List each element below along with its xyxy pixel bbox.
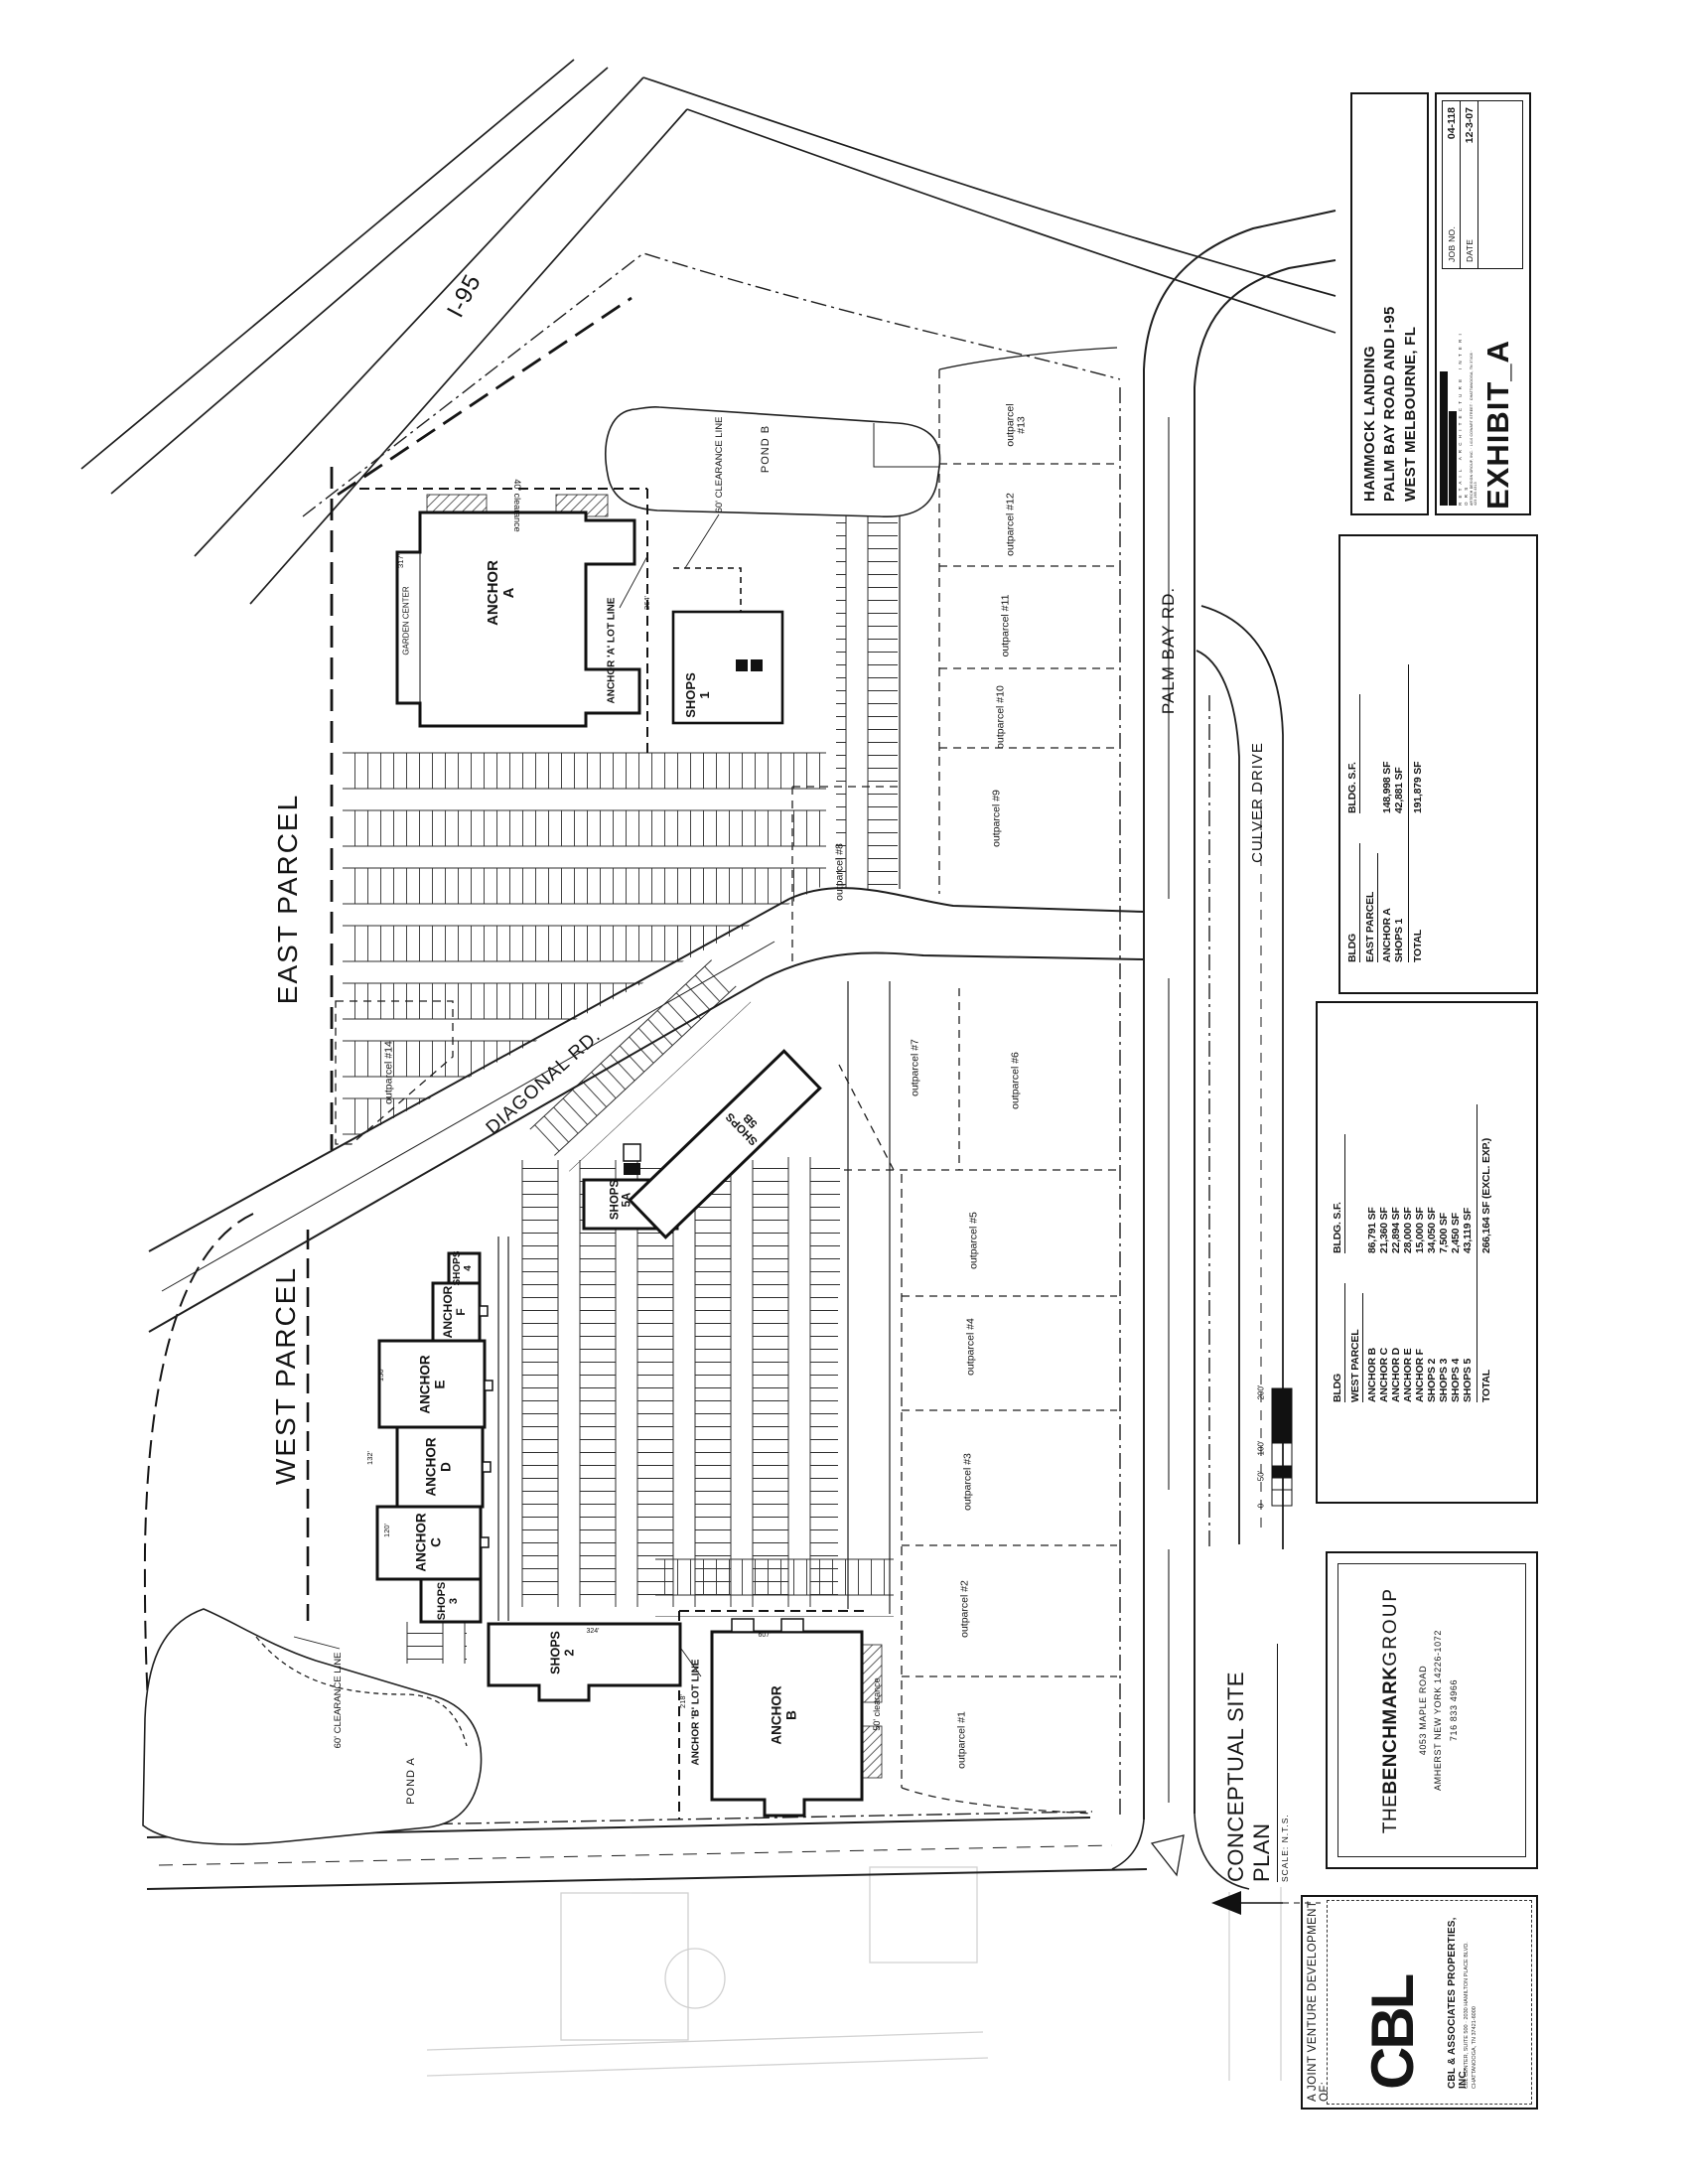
bldg-sf: 43,119 SF (1462, 1124, 1474, 1253)
job-info-box: JOB NO. 04-118 DATE 12-3-07 (1442, 100, 1523, 269)
scalebar-tick: 50' (1258, 1471, 1267, 1481)
plan-title-block: CONCEPTUAL SITE PLAN SCALE: N.T.S. (1223, 1644, 1259, 1882)
bldg-name: ANCHOR B (1366, 1253, 1378, 1402)
label-culver-drive: CULVER DRIVE (1250, 742, 1266, 863)
cbl-logo: CBL (1363, 1976, 1423, 2090)
bldg-name: SHOPS 2 (1426, 1253, 1438, 1402)
label-outparcel-7: outparcel #7 (910, 1039, 920, 1096)
label-anchor-b-lot-line: ANCHOR 'B' LOT LINE (692, 1660, 703, 1766)
bldg-name: ANCHOR A (1381, 813, 1393, 962)
west-table-header: BLDG BLDG. S.F. (1332, 1104, 1345, 1402)
table-row: SHOPS 142,881 SF (1393, 664, 1405, 962)
project-title: HAMMOCK LANDING PALM BAY ROAD AND I-95 W… (1360, 306, 1421, 502)
label-dim-120: 120' (383, 1524, 391, 1537)
architect-logo-bar (1440, 371, 1448, 506)
label-clearance-40: 40' clearance (511, 479, 521, 531)
date-value: 12-3-07 (1464, 107, 1476, 143)
project-name: HAMMOCK LANDING (1360, 306, 1380, 502)
label-shops-1: SHOPS 1 (684, 672, 712, 718)
label-outparcel-12: outparcel #12 (1005, 493, 1016, 556)
west-parcel-table: BLDG BLDG. S.F. WEST PARCEL ANCHOR B86,7… (1332, 1104, 1492, 1402)
label-outparcel-4: outparcel #4 (965, 1318, 976, 1376)
bldg-sf: 28,000 SF (1402, 1124, 1414, 1253)
table-row: ANCHOR A148,998 SF (1381, 664, 1393, 962)
architect-stamp: R E T A I L A R C H I T E C T U R E I N … (1440, 332, 1477, 506)
job-no-value: 04-118 (1446, 107, 1458, 139)
bldg-sf: 15,000 SF (1414, 1124, 1426, 1253)
plan-scale-note: SCALE: N.T.S. (1280, 1644, 1290, 1882)
benchmark-address: 4053 MAPLE ROAD AMHERST NEW YORK 14226-1… (1416, 1564, 1462, 1856)
table-row: ANCHOR B86,791 SF (1366, 1104, 1378, 1402)
date-label: DATE (1465, 239, 1475, 262)
bldg-sf: 148,998 SF (1381, 684, 1393, 813)
bldg-sf: 34,050 SF (1426, 1124, 1438, 1253)
architect-logo-bar2 (1449, 411, 1457, 506)
titleblock-project-box: HAMMOCK LANDING PALM BAY ROAD AND I-95 W… (1350, 92, 1429, 515)
label-east-parcel: EAST PARCEL (273, 794, 303, 1004)
label-garden-center: GARDEN CENTER (403, 586, 412, 655)
label-dim-150: 150' (377, 1368, 385, 1382)
label-dim-132: 132' (366, 1451, 374, 1465)
bldg-sf: 2,450 SF (1450, 1124, 1462, 1253)
benchmark-phone: 716 833 4966 (1447, 1564, 1462, 1856)
table-row: ANCHOR F15,000 SF (1414, 1104, 1426, 1402)
bldg-sf: 21,360 SF (1378, 1124, 1390, 1253)
job-no-row: JOB NO. 04-118 (1443, 101, 1461, 268)
building-anchor-a (397, 512, 639, 726)
exhibit-title: EXHIBIT_A (1480, 340, 1516, 510)
label-outparcel-14: outparcel #14 (383, 1041, 394, 1104)
label-dim-317: 317' (397, 554, 405, 568)
bldg-name: SHOPS 1 (1393, 813, 1405, 962)
benchmark-inner-border: THEBENCHMARKGROUP 4053 MAPLE ROAD AMHERS… (1337, 1563, 1526, 1857)
label-anchor-b: ANCHOR B (770, 1685, 798, 1744)
scalebar-tick: 0 (1258, 1504, 1267, 1508)
bldg-name: SHOPS 5 (1462, 1253, 1474, 1402)
label-dim-607: 607' (758, 1632, 771, 1640)
label-outparcel-5: outparcel #5 (968, 1212, 979, 1269)
label-anchor-a-lot-line: ANCHOR 'A' LOT LINE (608, 598, 619, 704)
label-dim-324: 324' (586, 1628, 599, 1636)
label-shops-2: SHOPS 2 (550, 1631, 577, 1674)
benchmark-box: THEBENCHMARKGROUP 4053 MAPLE ROAD AMHERS… (1326, 1551, 1538, 1869)
label-outparcel-10: outparcel #10 (995, 685, 1006, 749)
table-row: ANCHOR E28,000 SF (1402, 1104, 1414, 1402)
developer-inner-border: CBL CBL & ASSOCIATES PROPERTIES, INC. CB… (1327, 1900, 1532, 2105)
table-row: SHOPS 42,450 SF (1450, 1104, 1462, 1402)
table-row: ANCHOR D22,894 SF (1390, 1104, 1402, 1402)
developer-box: A JOINT VENTURE DEVELOPMENT OF: CBL CBL … (1301, 1895, 1538, 2110)
benchmark-name: THEBENCHMARKGROUP (1380, 1564, 1402, 1856)
label-palm-bay-rd: PALM BAY RD. (1160, 587, 1178, 714)
job-no-label: JOB NO. (1447, 226, 1457, 262)
bldg-name: SHOPS 4 (1450, 1253, 1462, 1402)
project-road: PALM BAY ROAD AND I-95 (1380, 306, 1400, 502)
label-clearance-line-east: 60' CLEARANCE LINE (715, 417, 725, 513)
architect-address: ARTECH DESIGN GROUP, INC. · 1410 COWART … (1470, 332, 1478, 506)
label-shops-3: SHOPS 3 (437, 1582, 461, 1621)
label-shops-5a: SHOPS 5A (610, 1180, 634, 1220)
label-pond-b: POND B (761, 425, 773, 473)
label-anchor-c: ANCHOR C (414, 1513, 443, 1571)
label-outparcel-13: outparcel #13 (1006, 403, 1029, 446)
pond-b-outline (606, 407, 940, 516)
label-anchor-e: ANCHOR E (418, 1355, 447, 1413)
bldg-sf: 86,791 SF (1366, 1124, 1378, 1253)
label-dim-264: 264' (643, 596, 651, 610)
west-parcel-table-box: BLDG BLDG. S.F. WEST PARCEL ANCHOR B86,7… (1316, 1001, 1538, 1504)
west-table-total: TOTAL 266,164 SF (EXCL. EXP.) (1477, 1104, 1492, 1402)
building-shops-2 (489, 1624, 680, 1700)
table-row: SHOPS 37,500 SF (1438, 1104, 1450, 1402)
bldg-name: ANCHOR E (1402, 1253, 1414, 1402)
exhibit-sheet: EAST PARCELWEST PARCELI-95PALM BAY RD.CU… (0, 0, 1688, 2184)
label-outparcel-6: outparcel #6 (1010, 1052, 1021, 1109)
label-west-parcel: WEST PARCEL (271, 1266, 301, 1485)
cbl-company-address: CBL CENTER, SUITE 500 · 2030 HAMILTON PL… (1463, 1942, 1479, 2089)
label-outparcel-3: outparcel #3 (962, 1453, 973, 1511)
bldg-sf: 7,500 SF (1438, 1124, 1450, 1253)
label-anchor-a: ANCHOR A (486, 560, 517, 626)
label-outparcel-9: outparcel #9 (991, 790, 1002, 847)
table-row: ANCHOR C21,360 SF (1378, 1104, 1390, 1402)
label-outparcel-8: outparcel #8 (834, 843, 845, 901)
label-anchor-f: ANCHOR F (442, 1286, 468, 1339)
bldg-sf: 42,881 SF (1393, 684, 1405, 813)
bldg-sf: 22,894 SF (1390, 1124, 1402, 1253)
plan-title: CONCEPTUAL SITE PLAN (1223, 1644, 1278, 1882)
label-outparcel-11: outparcel #11 (1000, 595, 1011, 657)
scale-bar (1272, 1388, 1292, 1506)
architect-tagline: R E T A I L A R C H I T E C T U R E I N … (1458, 332, 1470, 506)
east-table-header: BLDG BLDG. S.F. (1346, 664, 1360, 962)
bldg-name: ANCHOR C (1378, 1253, 1390, 1402)
west-table-section: WEST PARCEL (1349, 1293, 1363, 1402)
date-row: DATE 12-3-07 (1461, 101, 1478, 268)
titleblock-exhibit-box: R E T A I L A R C H I T E C T U R E I N … (1435, 92, 1531, 515)
label-shops-4: SHOPS 4 (453, 1250, 475, 1285)
east-table-section: EAST PARCEL (1364, 853, 1378, 962)
bldg-name: ANCHOR F (1414, 1253, 1426, 1402)
east-table-total: TOTAL 191,879 SF (1408, 664, 1424, 962)
label-anchor-d: ANCHOR D (424, 1437, 453, 1496)
east-parcel-table-box: BLDG BLDG. S.F. EAST PARCEL ANCHOR A148,… (1338, 534, 1538, 994)
east-parcel-table: BLDG BLDG. S.F. EAST PARCEL ANCHOR A148,… (1346, 664, 1424, 962)
table-row: SHOPS 234,050 SF (1426, 1104, 1438, 1402)
ghost-bleedthrough (427, 1867, 1281, 2081)
scalebar-tick: 100' (1258, 1441, 1267, 1456)
bldg-name: ANCHOR D (1390, 1253, 1402, 1402)
label-pond-a: POND A (406, 1757, 418, 1805)
project-city: WEST MELBOURNE, FL (1401, 306, 1421, 502)
label-outparcel-2: outparcel #2 (959, 1580, 970, 1638)
table-row: SHOPS 543,119 SF (1462, 1104, 1474, 1402)
label-clearance-line-west: 60' CLEARANCE LINE (334, 1653, 344, 1749)
label-clearance-50: 50' clearance (873, 1677, 883, 1730)
label-dim-218: 218' (679, 1694, 687, 1708)
bldg-name: SHOPS 3 (1438, 1253, 1450, 1402)
label-outparcel-1: outparcel #1 (956, 1711, 967, 1769)
highway-i95 (81, 60, 1336, 604)
road-palm-bay (1112, 211, 1336, 1889)
scalebar-tick: 200' (1258, 1385, 1267, 1400)
